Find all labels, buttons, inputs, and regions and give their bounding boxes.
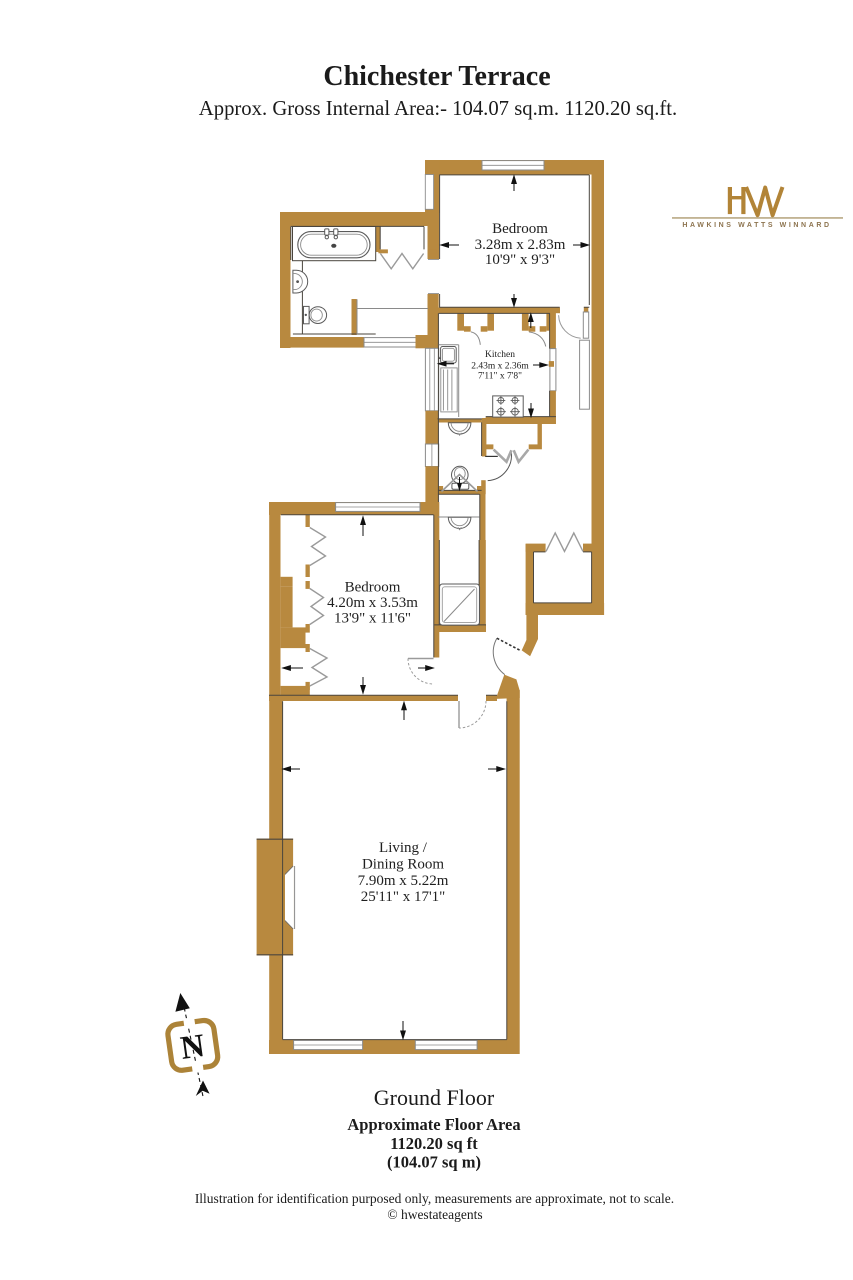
svg-text:25'11" x 17'1": 25'11" x 17'1" <box>361 889 446 905</box>
svg-text:(104.07 sq m): (104.07 sq m) <box>387 1153 481 1172</box>
svg-text:N: N <box>178 1028 207 1067</box>
svg-text:Bedroom: Bedroom <box>345 580 401 596</box>
svg-text:Ground Floor: Ground Floor <box>374 1085 495 1110</box>
svg-text:Approx. Gross Internal Area:-: Approx. Gross Internal Area:- 104.07 sq.… <box>199 98 677 120</box>
svg-text:10'9" x 9'3": 10'9" x 9'3" <box>485 252 555 268</box>
svg-text:HAWKINS WATTS WINNARD: HAWKINS WATTS WINNARD <box>682 222 831 229</box>
svg-text:Dining Room: Dining Room <box>362 857 444 873</box>
svg-text:3.28m x 2.83m: 3.28m x 2.83m <box>475 237 566 253</box>
svg-text:7.90m x 5.22m: 7.90m x 5.22m <box>358 873 449 889</box>
svg-text:© hwestateagents: © hwestateagents <box>387 1207 482 1222</box>
svg-text:13'9" x 11'6": 13'9" x 11'6" <box>334 611 411 627</box>
svg-text:Living /: Living / <box>379 840 428 856</box>
svg-text:2.43m x 2.36m: 2.43m x 2.36m <box>471 362 529 372</box>
svg-text:Chichester Terrace: Chichester Terrace <box>323 61 550 92</box>
svg-text:7'11" x 7'8": 7'11" x 7'8" <box>478 372 522 382</box>
svg-text:4.20m x 3.53m: 4.20m x 3.53m <box>327 595 418 611</box>
svg-text:Kitchen: Kitchen <box>485 350 515 360</box>
svg-text:Illustration for identificatio: Illustration for identification purposed… <box>195 1191 674 1206</box>
svg-text:1120.20 sq ft: 1120.20 sq ft <box>390 1134 478 1153</box>
svg-text:Bedroom: Bedroom <box>492 221 548 237</box>
svg-text:Approximate Floor Area: Approximate Floor Area <box>347 1115 520 1134</box>
